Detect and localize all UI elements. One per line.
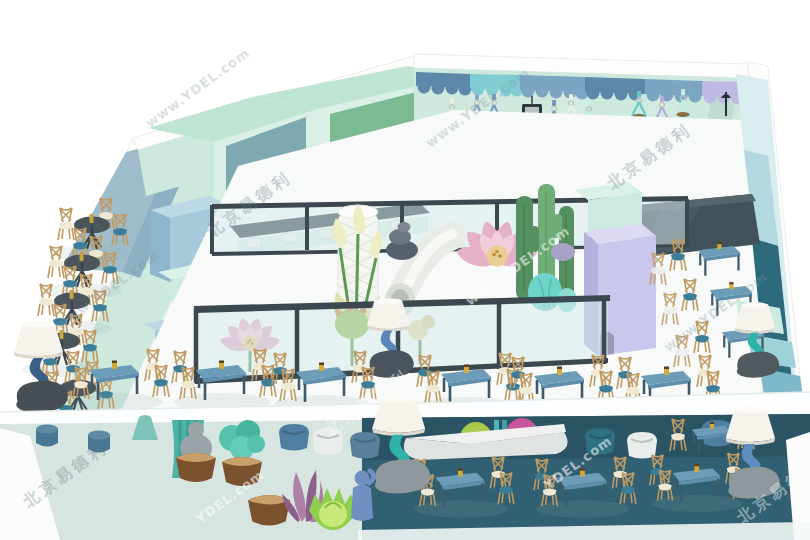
scene-canvas: www.YDEL.com 北京易德利 www.YDEL.com 北京易德利 YD… xyxy=(0,0,810,540)
render-stage: www.YDEL.com 北京易德利 www.YDEL.com 北京易德利 YD… xyxy=(0,0,810,540)
stool-1 xyxy=(36,425,58,447)
